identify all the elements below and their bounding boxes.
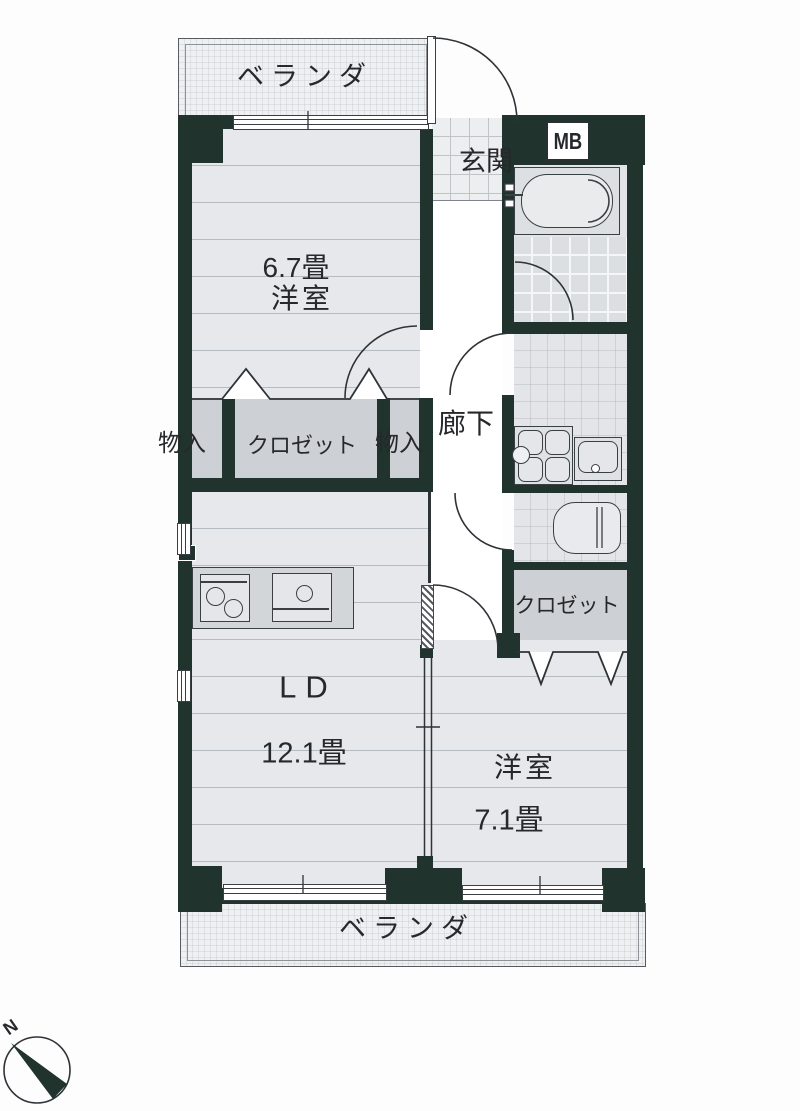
compass: N xyxy=(0,1015,70,1103)
kitchen-burner-1 xyxy=(206,587,225,606)
living-door-leaf xyxy=(421,585,434,649)
bedroom2-veranda-window xyxy=(462,885,604,901)
kitchen-sink-drain xyxy=(296,585,313,602)
bedroom1-veranda-window xyxy=(233,115,429,130)
living-side-window-2 xyxy=(177,670,191,702)
genkan-label: 玄関 xyxy=(459,149,513,176)
living-size-label: 12.1畳 xyxy=(261,740,346,769)
bathroom-tile-floor xyxy=(514,237,627,322)
left-wall xyxy=(178,115,192,903)
compass-north-needle xyxy=(11,1043,67,1099)
hall-washroom-wall xyxy=(502,395,514,493)
hall-bottom-stub xyxy=(497,633,520,658)
bedroom1-size-label: 6.7畳 xyxy=(263,254,330,282)
right-wall xyxy=(627,115,643,903)
closet-main-label: クロゼット xyxy=(247,435,357,457)
laundry-pan-q4 xyxy=(545,457,570,482)
living-hall-wall-line xyxy=(428,492,431,583)
divider-bottom-stub xyxy=(417,856,433,888)
toilet-bottom-wall xyxy=(512,562,627,570)
closet-row-bottom-wall xyxy=(178,478,433,492)
washroom-bottom-wall xyxy=(512,485,627,493)
kitchen-burner-2 xyxy=(224,599,243,618)
laundry-pan-drain xyxy=(512,446,530,464)
living-label: LD xyxy=(279,672,337,703)
hallway-label: 廊下 xyxy=(438,410,494,438)
kitchen-stove-back-panel xyxy=(201,581,247,583)
top-wall xyxy=(178,115,233,129)
bottom-right-pillar xyxy=(602,868,645,912)
bedroom2-size-label: 7.1畳 xyxy=(474,807,543,836)
washbasin-drain xyxy=(591,464,600,473)
bedroom1-type-label: 洋室 xyxy=(271,285,333,313)
entrance-door-arc xyxy=(433,38,517,122)
living-veranda-window xyxy=(223,884,387,901)
floor-plan: ベランダ ベランダ MB xyxy=(0,0,800,1111)
living-side-window-1 xyxy=(177,523,191,555)
compass-north-label: N xyxy=(0,1015,22,1039)
storage-right-label: 物入 xyxy=(375,432,423,456)
storage-left-label: 物入 xyxy=(158,432,206,456)
kitchen-sink-front-line xyxy=(273,608,329,610)
compass-circle xyxy=(4,1037,70,1103)
hall-bath-wall-upper xyxy=(502,165,514,334)
closet-right-label: クロゼット xyxy=(515,596,620,617)
bottom-left-pillar xyxy=(178,866,222,912)
bedroom1-right-wall xyxy=(420,129,433,330)
bath-bottom-wall xyxy=(502,322,627,334)
bedroom2-type-label: 洋室 xyxy=(494,754,556,782)
veranda-top-label: ベランダ xyxy=(237,64,373,91)
closet-divider-left xyxy=(222,398,235,478)
laundry-pan-q2 xyxy=(545,430,570,455)
meter-box-label: MB xyxy=(554,128,583,155)
entrance-door-leaf xyxy=(427,36,436,124)
veranda-bottom-label: ベランダ xyxy=(339,916,475,943)
toilet-bowl xyxy=(553,502,621,554)
bathtub-inner xyxy=(521,174,613,228)
meter-box: MB xyxy=(546,121,590,161)
